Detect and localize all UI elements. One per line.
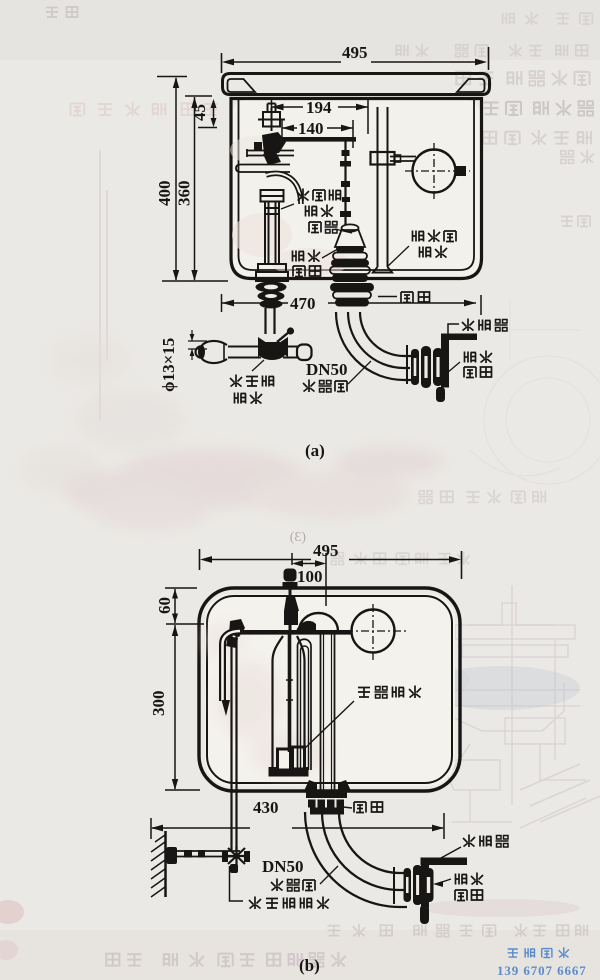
svg-text:DN50: DN50 bbox=[262, 857, 304, 876]
svg-text:100: 100 bbox=[297, 567, 323, 586]
svg-text:(3): (3) bbox=[289, 530, 306, 545]
svg-text:430: 430 bbox=[253, 798, 279, 817]
svg-text:140: 140 bbox=[298, 119, 324, 138]
svg-text:470: 470 bbox=[290, 294, 316, 313]
svg-text:DN50: DN50 bbox=[306, 360, 348, 379]
svg-text:300: 300 bbox=[149, 691, 168, 717]
svg-text:ϕ13×15: ϕ13×15 bbox=[159, 338, 178, 392]
svg-text:(b): (b) bbox=[299, 956, 320, 975]
svg-text:(a): (a) bbox=[305, 441, 325, 460]
svg-text:495: 495 bbox=[342, 43, 368, 62]
svg-text:400: 400 bbox=[155, 181, 174, 207]
svg-text:194: 194 bbox=[306, 98, 332, 117]
svg-text:139 6707 6667: 139 6707 6667 bbox=[497, 963, 587, 978]
svg-text:60: 60 bbox=[155, 597, 174, 614]
svg-text:360: 360 bbox=[175, 181, 194, 207]
